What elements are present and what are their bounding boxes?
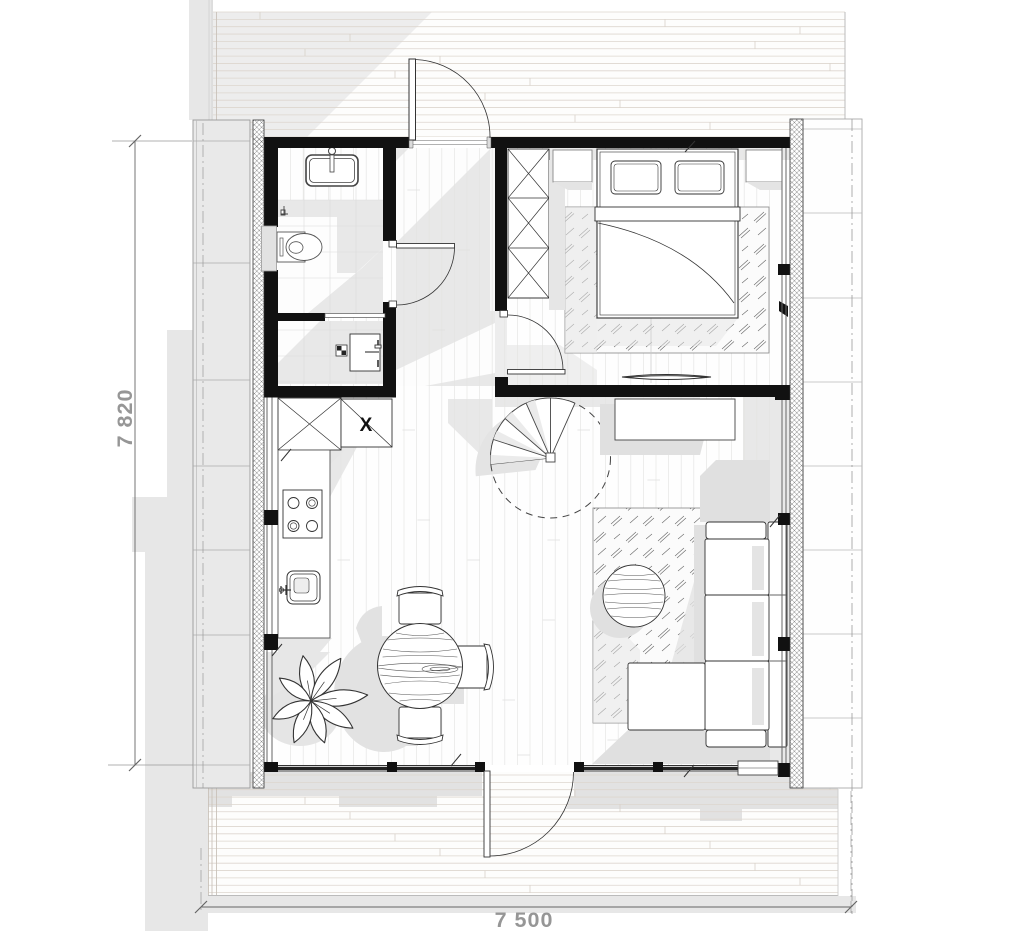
svg-text:X: X bbox=[360, 415, 373, 436]
svg-text:7 500: 7 500 bbox=[495, 908, 554, 931]
svg-text:7 820: 7 820 bbox=[113, 389, 137, 448]
